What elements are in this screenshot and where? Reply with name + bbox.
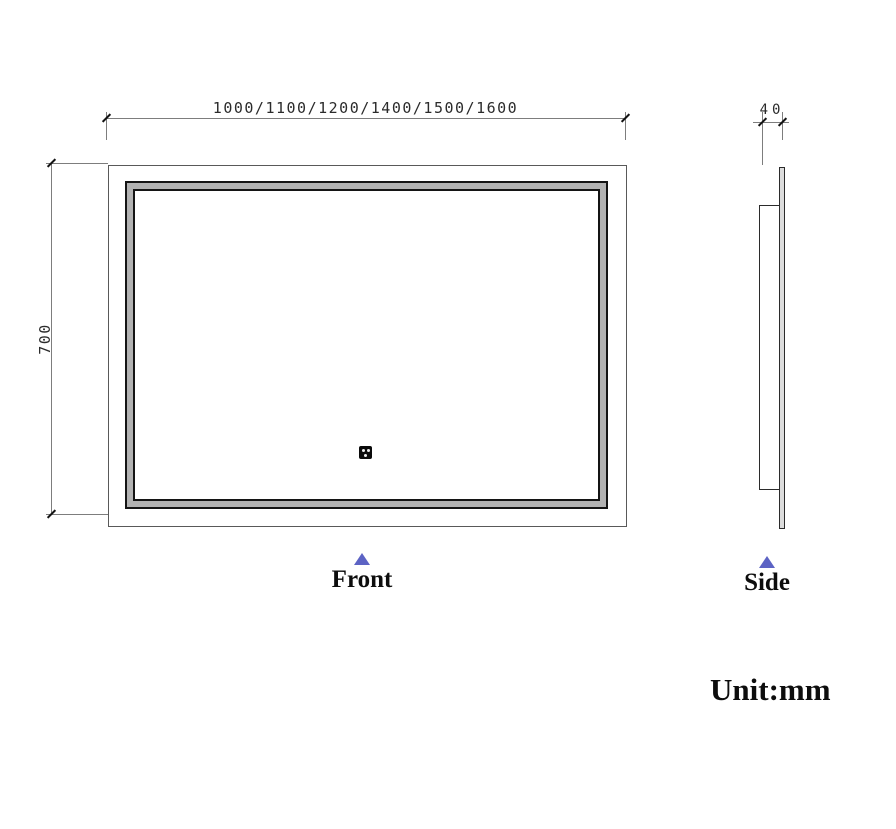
dimension-line (106, 118, 625, 119)
side-pointer-triangle-up-icon (759, 556, 775, 568)
extension-line (46, 514, 108, 515)
front-width-dimension-text: 1000/1100/1200/1400/1500/1600 (106, 99, 625, 117)
side-thickness-dimension-text: 40 (750, 102, 794, 118)
mirror-led-frame (125, 181, 608, 509)
front-view-label: Front (317, 566, 407, 594)
technical-drawing-canvas: 1000/1100/1200/1400/1500/1600 700 40 Fro… (0, 0, 896, 829)
unit-note: Unit:mm (710, 672, 831, 708)
sensor-dot-pattern (362, 449, 365, 452)
mirror-back-housing (759, 205, 780, 490)
extension-line (46, 163, 108, 164)
mirror-glass-panel-edge (779, 167, 785, 529)
touch-sensor-icon (359, 446, 372, 459)
side-view-label: Side (722, 569, 812, 597)
front-pointer-triangle-up-icon (354, 553, 370, 565)
front-height-dimension-text: 700 (36, 315, 54, 363)
